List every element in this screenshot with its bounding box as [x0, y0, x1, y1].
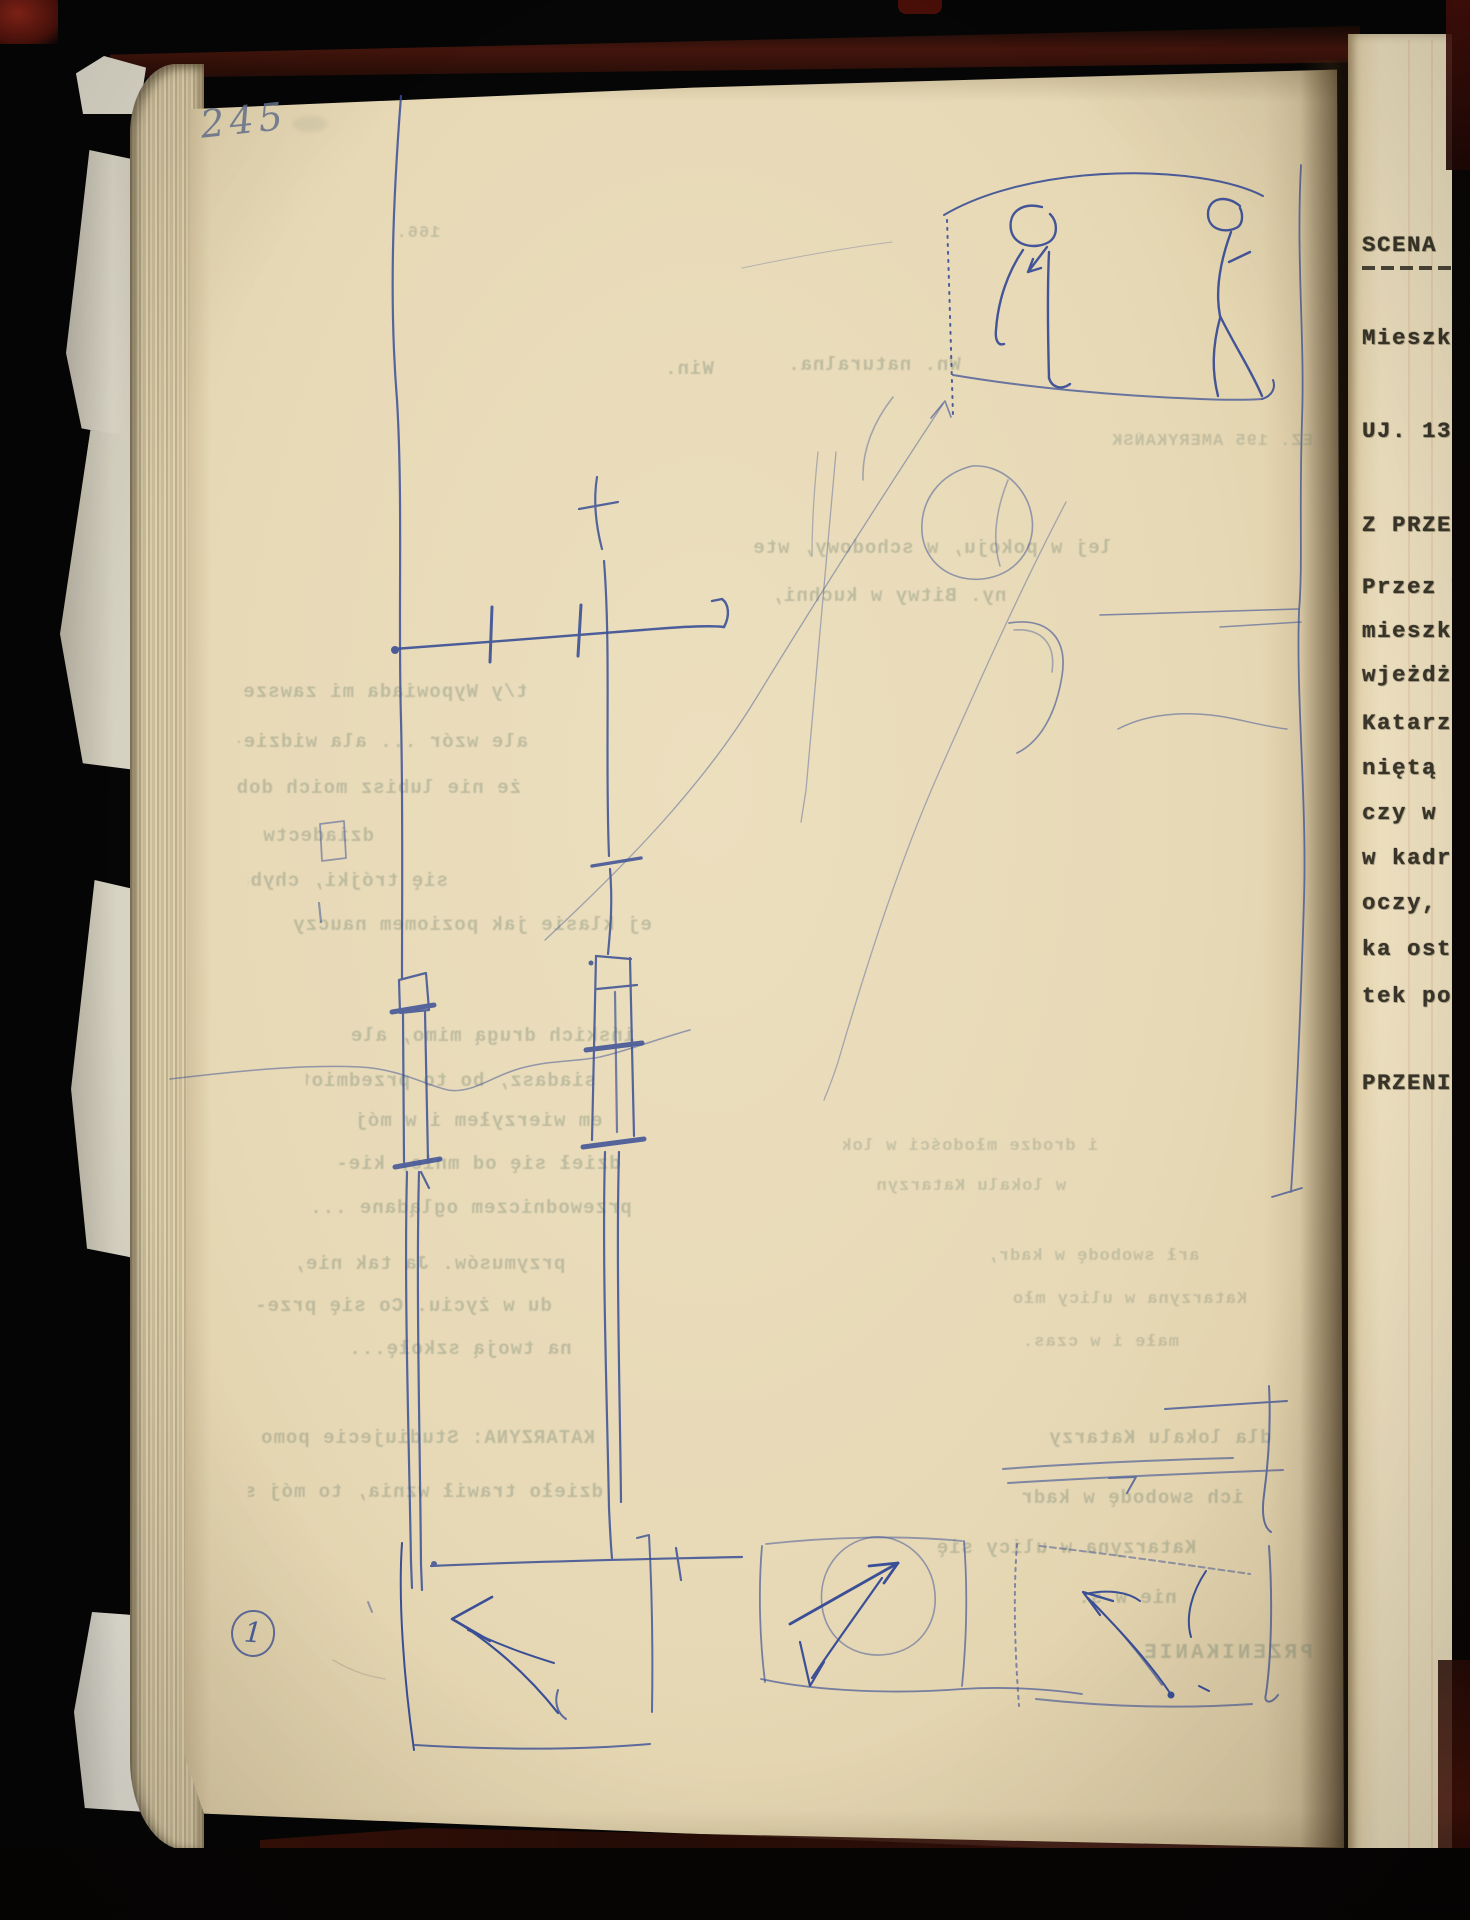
cover-edge-red	[1446, 0, 1470, 170]
typescript-column: SCENA 8 Mieszka UJ. 136 Z PRZEN Przez W …	[0, 0, 1470, 1920]
scene-heading-underline	[1362, 266, 1456, 270]
book-photo: 245 166. Win. Wn. naturalna. EZ. 195 AME…	[0, 0, 1470, 1920]
photo-right-edge	[1452, 0, 1470, 1920]
photo-bottom-edge	[0, 1848, 1470, 1920]
